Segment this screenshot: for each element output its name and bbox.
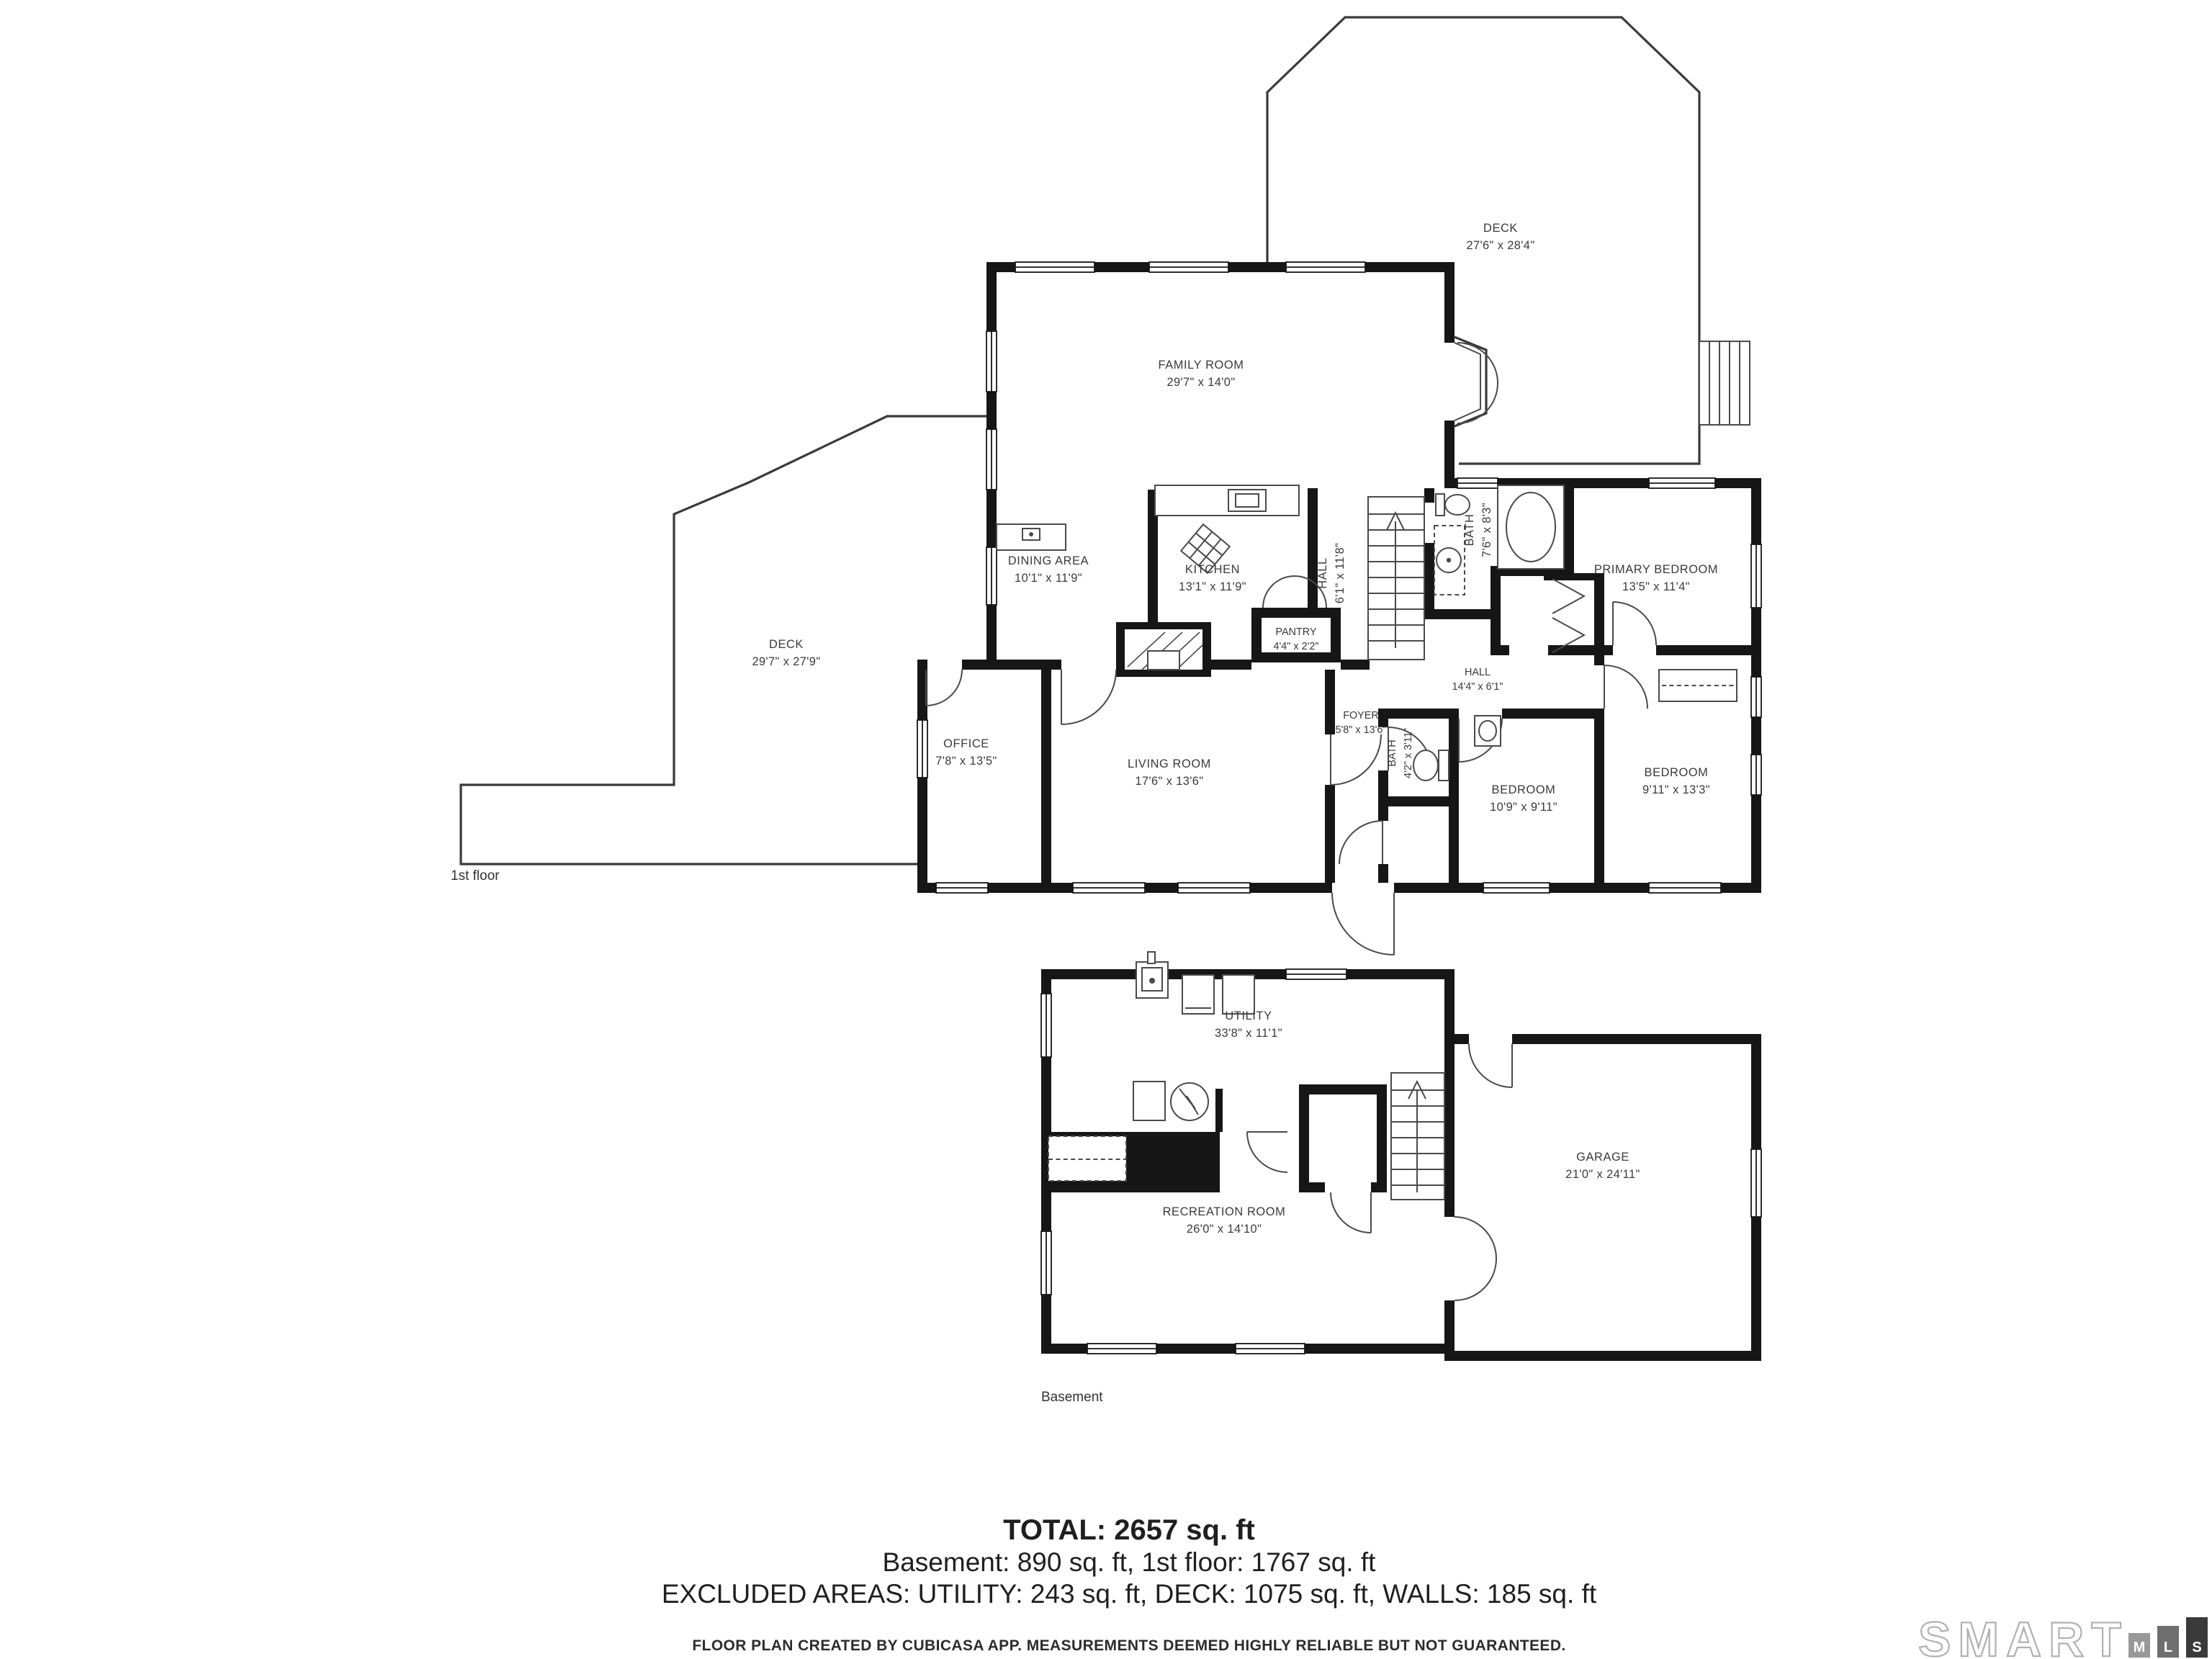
toilet-icon [1436, 494, 1470, 516]
logo-letter-s: S [2192, 1640, 2201, 1655]
room-dims-bedroom-2: 9'11" x 13'3" [1642, 783, 1710, 796]
room-dims-kitchen: 13'1" x 11'9" [1179, 580, 1246, 593]
window [1236, 1344, 1305, 1354]
window [917, 720, 927, 778]
window [1178, 883, 1250, 893]
room-label-recreation-room: RECREATION ROOM [1163, 1205, 1286, 1218]
window [986, 429, 997, 490]
room-label-kitchen: KITCHEN [1185, 563, 1240, 576]
window [1041, 994, 1051, 1057]
room-dims-family-room: 29'7" x 14'0" [1166, 376, 1235, 389]
window [1286, 262, 1365, 272]
room-label-pantry: PANTRY [1275, 626, 1316, 638]
door-arc [1604, 665, 1647, 709]
sink-icon [1434, 526, 1465, 595]
first-floor: DECK 27'6" x 28'4" FAMILY ROOM 29'7" x 1… [451, 17, 1761, 955]
window [936, 883, 988, 893]
window [1649, 883, 1721, 893]
room-label-bedroom-1: BEDROOM [1492, 783, 1556, 796]
utility-sink-icon [1136, 952, 1168, 998]
room-dims-foyer: 5'8" x 13'6" [1336, 724, 1387, 736]
room-dims-hall-upper: 6'1" x 11'8" [1334, 543, 1346, 603]
deck-stairs-icon [1699, 341, 1750, 425]
kitchen-island [997, 524, 1066, 550]
room-dims-pantry: 4'4" x 2'2" [1274, 641, 1319, 652]
floor-tag-first: 1st floor [451, 868, 500, 884]
room-label-hall-upper: HALL [1316, 557, 1329, 588]
door-arc [1469, 1044, 1512, 1087]
window [986, 331, 997, 392]
room-dims-recreation-room: 26'0" x 14'10" [1187, 1223, 1262, 1236]
window [1649, 478, 1715, 488]
door-arc [1331, 734, 1381, 785]
room-label-deck-left: DECK [769, 638, 804, 651]
area-summary: TOTAL: 2657 sq. ft Basement: 890 sq. ft,… [662, 1514, 1597, 1654]
room-dims-dining-area: 10'1" x 11'9" [1015, 572, 1082, 585]
window [1751, 1149, 1761, 1217]
door-arc [926, 670, 962, 706]
room-label-office: OFFICE [943, 737, 989, 750]
bay-window [1455, 337, 1498, 426]
door-arc [1613, 602, 1656, 645]
floor-tag-basement: Basement [1041, 1390, 1103, 1405]
door-arc [1332, 893, 1394, 955]
closet-bifold-icon [1552, 579, 1584, 652]
dryer-icon [1223, 975, 1254, 1014]
kitchen-counter [1155, 485, 1299, 516]
window [1073, 883, 1145, 893]
room-label-family-room: FAMILY ROOM [1159, 359, 1244, 372]
window [1483, 883, 1550, 893]
room-dims-bath-suite: 7'6" x 8'3" [1480, 503, 1493, 557]
room-label-primary-bedroom: PRIMARY BEDROOM [1594, 563, 1718, 576]
sink-icon [1475, 716, 1501, 746]
room-label-dining-area: DINING AREA [1008, 554, 1089, 567]
washer-icon [1182, 975, 1214, 1014]
floor-breakdown-text: Basement: 890 sq. ft, 1st floor: 1767 sq… [883, 1547, 1377, 1577]
door-arc [1247, 1132, 1287, 1172]
chimney-block [1041, 1132, 1220, 1192]
stairs-icon [1391, 1073, 1444, 1200]
logo-letter-m: M [2134, 1640, 2146, 1655]
room-dims-deck-left: 29'7" x 27'9" [752, 655, 820, 668]
room-label-living-room: LIVING ROOM [1128, 757, 1211, 770]
door-arc [1061, 670, 1116, 724]
room-dims-living-room: 17'6" x 13'6" [1135, 775, 1203, 788]
disclaimer-text: FLOOR PLAN CREATED BY CUBICASA APP. MEAS… [692, 1637, 1565, 1654]
room-dims-primary-bedroom: 13'5" x 11'4" [1622, 580, 1690, 593]
room-label-bath-hall: BATH [1387, 739, 1398, 766]
room-dims-bedroom-1: 10'9" x 9'11" [1490, 801, 1557, 814]
room-dims-hall-lower: 14'4" x 6'1" [1452, 681, 1503, 693]
room-dims-garage: 21'0" x 24'11" [1565, 1168, 1640, 1181]
deck-left-outline [461, 416, 986, 864]
bathroom-fixtures-suite [1434, 485, 1584, 652]
window [1751, 755, 1761, 795]
room-dims-bath-hall: 4'2" x 3'11" [1403, 728, 1414, 778]
basement: UTILITY 33'8" x 11'1" RECREATION ROOM 26… [1041, 952, 1761, 1405]
total-area-text: TOTAL: 2657 sq. ft [1003, 1514, 1255, 1546]
door-arc [1339, 821, 1382, 864]
fireplace-icon [1116, 622, 1211, 677]
window [1286, 969, 1346, 979]
appliance-icon [1133, 1082, 1165, 1120]
window [1751, 544, 1761, 608]
door-arc [1455, 1259, 1496, 1300]
room-label-bedroom-2: BEDROOM [1645, 766, 1709, 779]
window [1751, 677, 1761, 717]
door-arc [1455, 1217, 1496, 1259]
window [986, 547, 997, 605]
room-label-garage: GARAGE [1576, 1151, 1629, 1164]
stairs-icon [1368, 497, 1424, 660]
room-dims-deck-top: 27'6" x 28'4" [1466, 239, 1534, 252]
bathtub-icon [1498, 485, 1564, 569]
brand-wordmark: SMART [1918, 1612, 2128, 1659]
window [1087, 1344, 1156, 1354]
room-dims-office: 7'8" x 13'5" [935, 755, 997, 768]
window [1015, 262, 1094, 272]
closet-icon [1659, 670, 1737, 701]
room-label-hall-lower: HALL [1465, 667, 1491, 678]
floor-plan-canvas: DECK 27'6" x 28'4" FAMILY ROOM 29'7" x 1… [0, 0, 2212, 1659]
logo-letter-l: L [2164, 1640, 2172, 1655]
storage-room [1299, 1084, 1387, 1233]
room-dims-utility: 33'8" x 11'1" [1215, 1027, 1282, 1040]
door-arc [1331, 1192, 1371, 1233]
window [1149, 262, 1228, 272]
excluded-areas-text: EXCLUDED AREAS: UTILITY: 243 sq. ft, DEC… [662, 1579, 1597, 1609]
toilet-icon [1413, 750, 1449, 781]
water-heater-icon [1171, 1083, 1208, 1120]
window [1457, 478, 1498, 488]
room-label-bath-suite: BATH [1463, 514, 1476, 547]
window [1041, 1231, 1051, 1295]
room-label-foyer: FOYER [1343, 710, 1379, 721]
room-label-utility: UTILITY [1225, 1010, 1272, 1022]
smartmls-logo: SMART M L S [1918, 1612, 2208, 1659]
room-label-deck-top: DECK [1483, 222, 1518, 235]
